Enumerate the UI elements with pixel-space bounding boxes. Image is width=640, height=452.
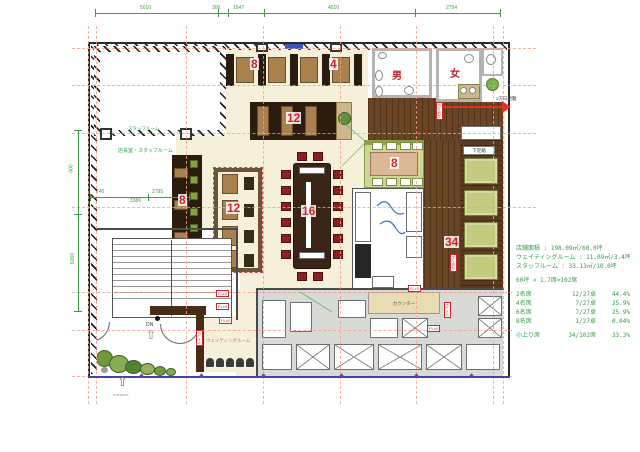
seat-row-pct: 0.04% xyxy=(596,317,630,326)
dim-tick xyxy=(74,311,82,312)
partition xyxy=(256,288,258,376)
grid-line xyxy=(493,26,494,404)
stats-seat-row: 2名席 12/27卓 44.4% xyxy=(516,290,634,299)
dim-line-top xyxy=(95,13,500,14)
stats-capacity-line: 60坪 × 1.7席=102席 xyxy=(516,276,638,285)
seat-count: 12 xyxy=(286,112,301,124)
dim-value: 2754 xyxy=(446,6,457,11)
toilet-fixture xyxy=(378,52,387,59)
partition xyxy=(236,228,238,320)
dim-tick xyxy=(90,194,91,201)
floor-level-chip: FL+500 xyxy=(450,254,457,272)
dim-value: 1547 xyxy=(233,6,244,11)
stats-seat-row: 8名席 1/27卓 0.04% xyxy=(516,317,634,326)
partition xyxy=(258,288,504,290)
toilet-fixture xyxy=(486,54,496,65)
dim-value: 4510 xyxy=(328,6,339,11)
stats-seat-row: 6名席 7/27卓 25.9% xyxy=(516,308,634,317)
grid-line xyxy=(503,26,504,404)
seat-row-ratio: 7/27卓 xyxy=(550,308,596,317)
staff-room-upper-label: スタッフルーム xyxy=(128,126,159,132)
grid-line xyxy=(340,26,341,404)
seat-count: 16 xyxy=(301,205,316,217)
seat-row-label: 2名席 xyxy=(516,290,550,299)
void-room xyxy=(100,52,220,130)
partition xyxy=(96,228,238,230)
evacuation-arrow xyxy=(436,106,504,108)
dim-value: 300 xyxy=(212,6,220,11)
dim-tick xyxy=(228,9,229,17)
dim-value: 2795 xyxy=(152,190,163,195)
grid-line xyxy=(96,26,97,404)
dim-tick xyxy=(415,9,416,17)
section-line xyxy=(88,376,510,378)
dim-value: 740 xyxy=(96,190,104,195)
floor-level-chip: FL±0 xyxy=(216,303,229,310)
mens-label: 男 xyxy=(392,72,402,82)
dim-line-left xyxy=(78,130,79,312)
urinal-fixture xyxy=(375,70,383,81)
entrance-label: entrance xyxy=(113,392,129,397)
stats-area-line: 店舗面積 : 198.09㎡/60.0坪 xyxy=(516,244,638,253)
seat-row-pct: 25.9% xyxy=(596,308,630,317)
seat-row-ratio: 12/27卓 xyxy=(550,290,596,299)
floor-plan-canvas: 下足箱 カウンター xyxy=(0,0,640,452)
total-row-pct: 33.3% xyxy=(596,331,630,340)
dim-tick xyxy=(500,9,501,17)
seat-row-label: 6名席 xyxy=(516,308,550,317)
toilet-fixture xyxy=(404,86,414,95)
dim-tick xyxy=(148,194,149,201)
floor-level-chip: FL±0 xyxy=(427,325,440,332)
grid-line xyxy=(186,26,187,404)
seat-count: 8 xyxy=(250,58,259,70)
grid-line xyxy=(72,330,512,331)
sink-fixture xyxy=(460,87,467,94)
stats-area-line: スタッフルーム : 33.13㎡/10.0坪 xyxy=(516,262,638,271)
seat-row-label: 8名席 xyxy=(516,317,550,326)
floor-level-chip: FL±0 xyxy=(444,302,451,318)
seat-count: 8 xyxy=(178,194,187,206)
total-row-ratio: 34/102席 xyxy=(550,331,596,340)
grid-line xyxy=(72,133,536,134)
staff-room-label: 店長室・スタッフルーム xyxy=(118,148,173,154)
total-row-label: 小上り席 xyxy=(516,331,550,340)
seat-row-label: 4名席 xyxy=(516,299,550,308)
sink-fixture xyxy=(469,87,476,94)
dim-value: 6000 xyxy=(71,253,76,264)
seat-count: 4 xyxy=(329,58,338,70)
dim-tick xyxy=(95,9,96,17)
seat-row-ratio: 7/27卓 xyxy=(550,299,596,308)
seat-row-pct: 25.9% xyxy=(596,299,630,308)
grid-line xyxy=(416,26,417,404)
floor-level-chip: FL±0 xyxy=(219,317,232,324)
floor-level-chip: FL±0 xyxy=(408,285,421,292)
dim-tick xyxy=(189,194,190,201)
floor-level-chip: FL±0 xyxy=(196,330,203,346)
grid-line xyxy=(72,292,512,293)
evacuation-arrow-head-icon xyxy=(502,101,511,113)
womens-label: 女 xyxy=(450,70,460,80)
floor-level-chip: FL±0 xyxy=(216,290,229,297)
toilet-fixture xyxy=(464,54,474,63)
stats-block: 店舗面積 : 198.09㎡/60.0坪 ウェイティングルーム : 11.09㎡… xyxy=(516,244,638,340)
dim-value: 3386 xyxy=(130,199,141,204)
grid-line xyxy=(88,26,89,404)
seat-row-ratio: 1/27卓 xyxy=(550,317,596,326)
dim-value: 600 xyxy=(70,164,75,172)
stats-area-line: ウェイティングルーム : 11.09㎡/3.4坪 xyxy=(516,253,638,262)
floor-level-chip: FL+500 xyxy=(436,102,443,120)
dim-tick xyxy=(264,9,265,17)
grid-line xyxy=(72,48,536,49)
seat-row-pct: 44.4% xyxy=(596,290,630,299)
stats-total-row: 小上り席 34/102席 33.3% xyxy=(516,331,634,340)
dim-value: 5010 xyxy=(140,6,151,11)
grid-line xyxy=(72,85,536,86)
column xyxy=(100,128,112,140)
entrance-arrow-icon: ⇧ xyxy=(117,374,128,390)
seat-count: 12 xyxy=(226,202,241,214)
stats-seat-row: 4名席 7/27卓 25.9% xyxy=(516,299,634,308)
urinal-fixture xyxy=(375,86,383,97)
dim-tick xyxy=(74,130,82,131)
evacuation-label: 2方向避難 xyxy=(496,96,517,102)
grid-line xyxy=(263,26,264,404)
seat-count: 8 xyxy=(390,157,399,169)
dim-tick xyxy=(74,214,82,215)
seat-count: 34 xyxy=(444,236,459,248)
